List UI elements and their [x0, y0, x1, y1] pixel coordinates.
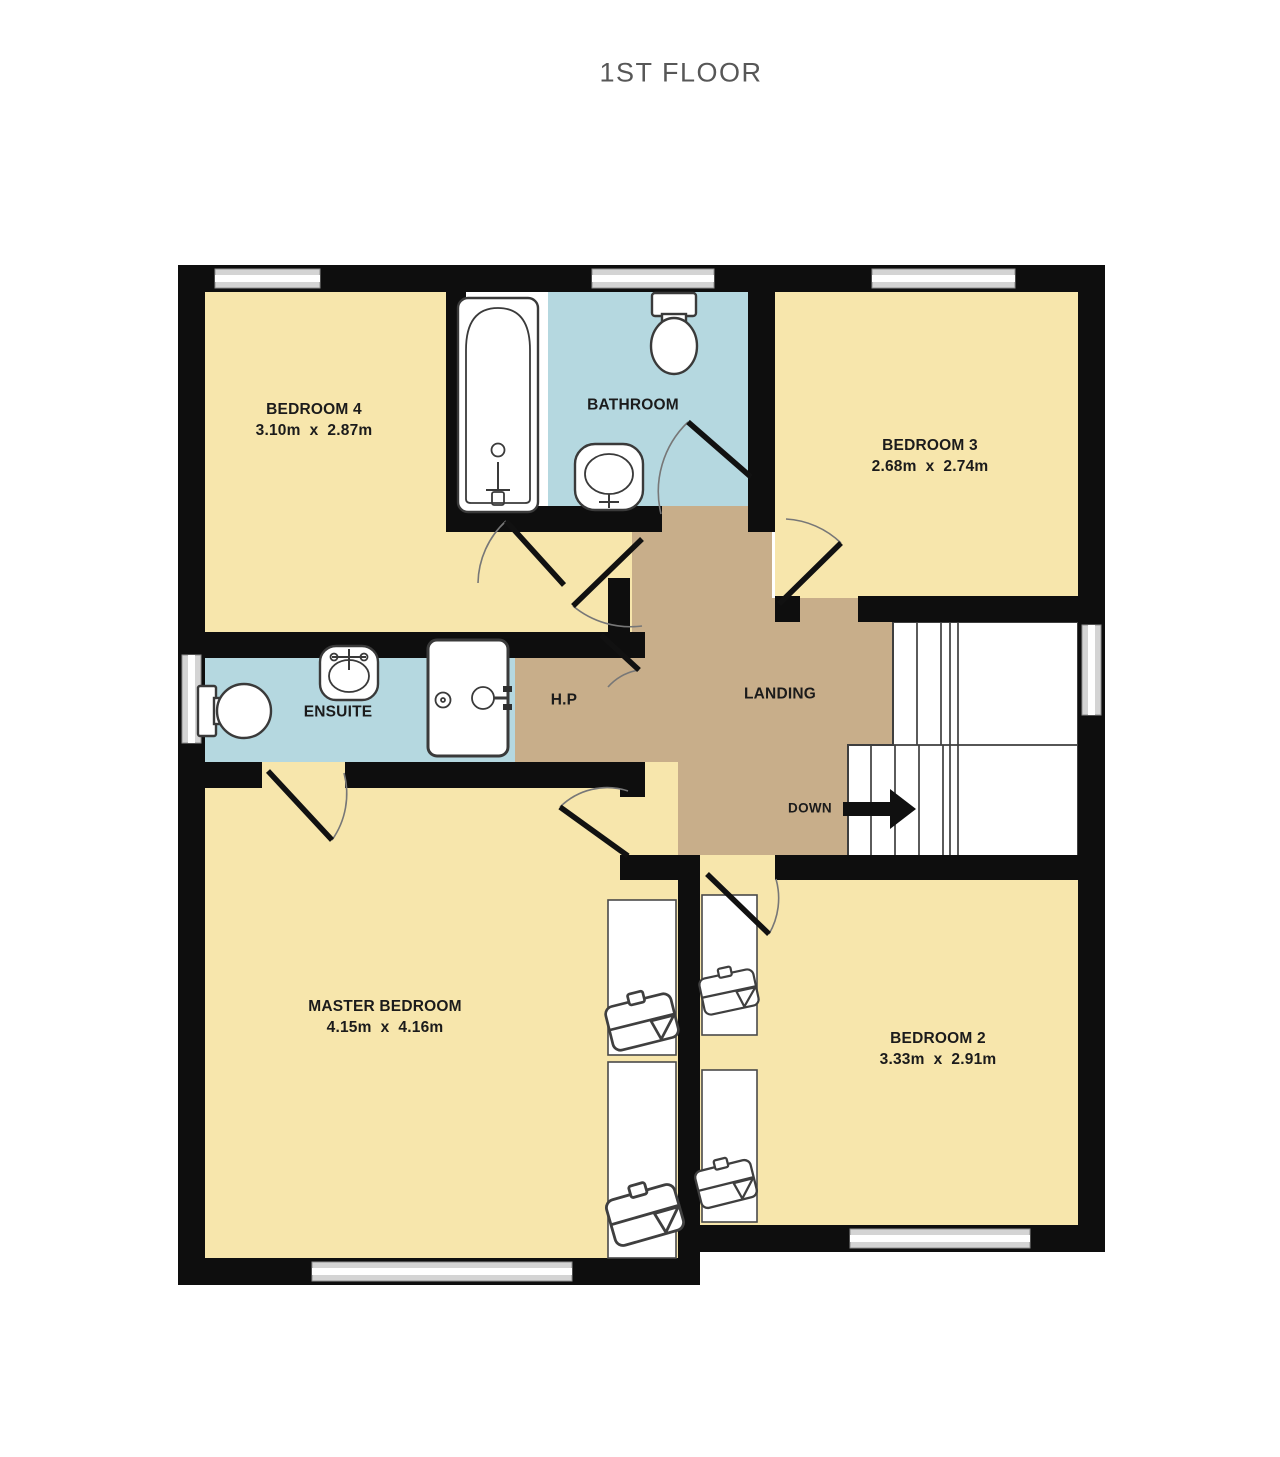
- shower-icon: [428, 640, 512, 756]
- room-name: BATHROOM: [587, 395, 679, 416]
- room-name: BEDROOM 4: [256, 399, 373, 420]
- bathroom-label: BATHROOM: [587, 395, 679, 416]
- bedroom2-window: [850, 1229, 1030, 1248]
- stairs-down-label: DOWN: [788, 798, 832, 819]
- wall-landing-bottom-right: [775, 855, 1078, 880]
- room-dims: 2.68m x 2.74m: [872, 456, 989, 477]
- bathroom-window: [592, 269, 714, 288]
- toilet-icon-ensuite: [198, 684, 271, 738]
- wall-corridor-stub: [608, 578, 630, 640]
- hot-press-label: H.P: [551, 690, 577, 711]
- wall-landing-west-stub: [620, 762, 645, 797]
- bedroom3-window: [872, 269, 1015, 288]
- master-bedroom-window: [312, 1262, 572, 1281]
- bathtub-icon: [458, 298, 538, 512]
- bedroom2-label: BEDROOM 2 3.33m x 2.91m: [880, 1028, 997, 1070]
- room-dims: 3.33m x 2.91m: [880, 1049, 997, 1070]
- room-name: BEDROOM 3: [872, 435, 989, 456]
- room-name: ENSUITE: [304, 702, 373, 723]
- sink-icon-bathroom: [575, 444, 643, 510]
- room-name: BEDROOM 2: [880, 1028, 997, 1049]
- toilet-icon-bathroom: [651, 293, 697, 374]
- room-name: MASTER BEDROOM: [308, 996, 462, 1017]
- bedroom3-label: BEDROOM 3 2.68m x 2.74m: [872, 435, 989, 477]
- bedroom4-label: BEDROOM 4 3.10m x 2.87m: [256, 399, 373, 441]
- wall-exterior-right: [1078, 265, 1105, 1252]
- wall-ensuite-bottom-right: [345, 762, 645, 788]
- down-text: DOWN: [788, 798, 832, 819]
- room-dims: 4.15m x 4.16m: [308, 1017, 462, 1038]
- room-dims: 3.10m x 2.87m: [256, 420, 373, 441]
- floor-plan-drawing: [0, 0, 1280, 1457]
- bedroom4-window: [215, 269, 320, 288]
- wall-ensuite-top: [178, 632, 645, 658]
- wall-bedroom3-bottom-left: [775, 596, 800, 622]
- wall-bathroom-bedroom3: [748, 292, 775, 532]
- room-name: LANDING: [744, 684, 816, 705]
- room-name: H.P: [551, 690, 577, 711]
- master-bedroom-label: MASTER BEDROOM 4.15m x 4.16m: [308, 996, 462, 1038]
- wall-ensuite-bottom-left: [178, 762, 262, 788]
- floor-plan-page: 1ST FLOOR: [0, 0, 1280, 1457]
- ensuite-label: ENSUITE: [304, 702, 373, 723]
- wall-bedroom3-bottom-right: [858, 596, 1078, 622]
- landing-label: LANDING: [744, 684, 816, 705]
- sink-icon-ensuite: [320, 646, 378, 700]
- floor-plan: BEDROOM 4 3.10m x 2.87m BATHROOM BEDROOM…: [0, 0, 1280, 1457]
- stairwell-window: [1082, 625, 1101, 715]
